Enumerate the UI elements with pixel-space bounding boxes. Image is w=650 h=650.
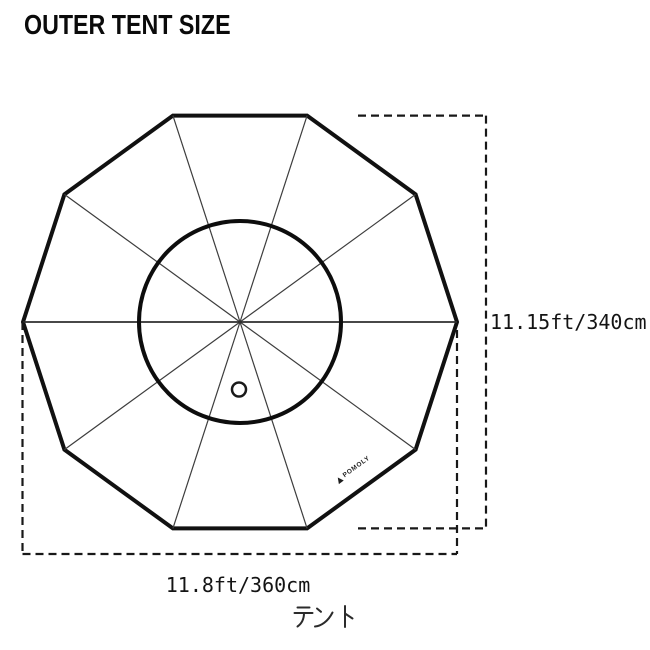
kana-to <box>345 606 353 627</box>
width-dimension-label: 11.8ft/360cm <box>165 572 311 598</box>
kana-te <box>295 608 313 627</box>
tent-caption-ja <box>293 603 355 629</box>
kana-n <box>315 609 333 627</box>
height-dimension-label: 11.15ft/340cm <box>490 309 647 335</box>
outer-tent-size-page: OUTER TENT SIZE <box>0 0 650 650</box>
pole-hole-circle <box>232 383 246 397</box>
